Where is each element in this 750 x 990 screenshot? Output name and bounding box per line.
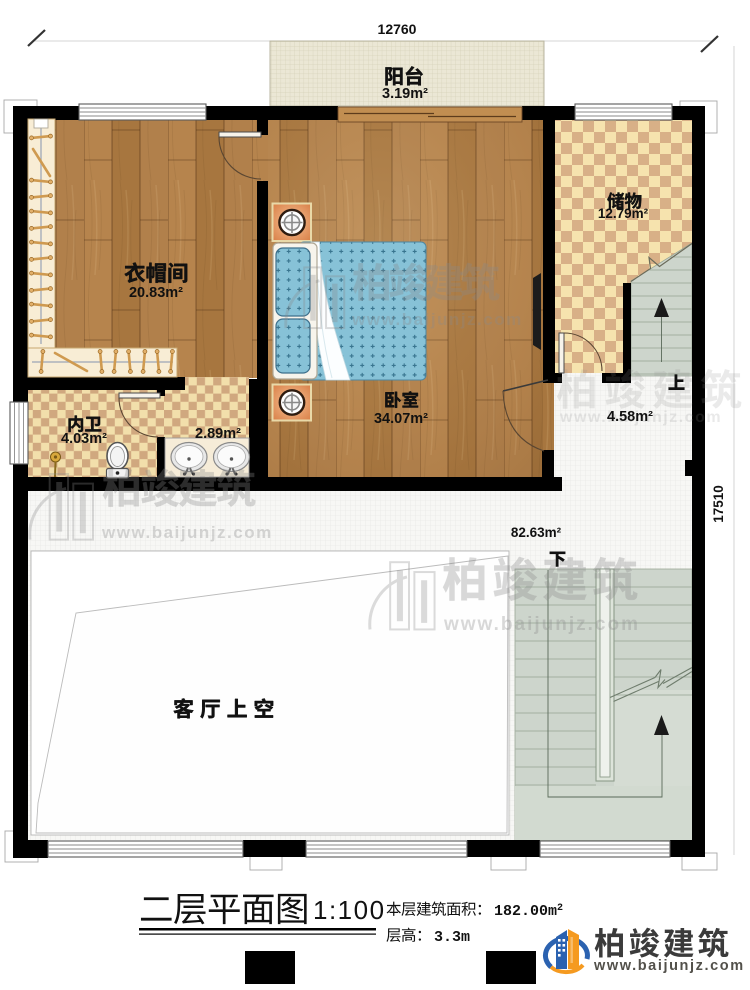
svg-text:4.03m²: 4.03m² xyxy=(61,431,107,447)
svg-text:www.baijunjz.com: www.baijunjz.com xyxy=(443,614,640,635)
svg-text:17510: 17510 xyxy=(711,485,726,523)
svg-text:2.89m²: 2.89m² xyxy=(195,426,241,442)
svg-text:12760: 12760 xyxy=(378,21,417,37)
svg-text:www.baijunjz.com: www.baijunjz.com xyxy=(351,310,523,329)
svg-text:182.00m2: 182.00m2 xyxy=(494,903,563,920)
svg-text:34.07m²: 34.07m² xyxy=(374,411,428,427)
svg-text:www.baijunjz.com: www.baijunjz.com xyxy=(593,958,745,974)
svg-text:82.63m²: 82.63m² xyxy=(511,525,562,540)
svg-text:3.3m: 3.3m xyxy=(434,929,470,946)
svg-text:1:100: 1:100 xyxy=(313,895,386,925)
svg-text:www.baijunjz.com: www.baijunjz.com xyxy=(101,523,273,542)
svg-text:12.79m²: 12.79m² xyxy=(598,206,649,221)
svg-text:20.83m²: 20.83m² xyxy=(129,285,183,301)
svg-text:3.19m²: 3.19m² xyxy=(382,86,428,102)
svg-text:4.58m²: 4.58m² xyxy=(607,409,653,425)
